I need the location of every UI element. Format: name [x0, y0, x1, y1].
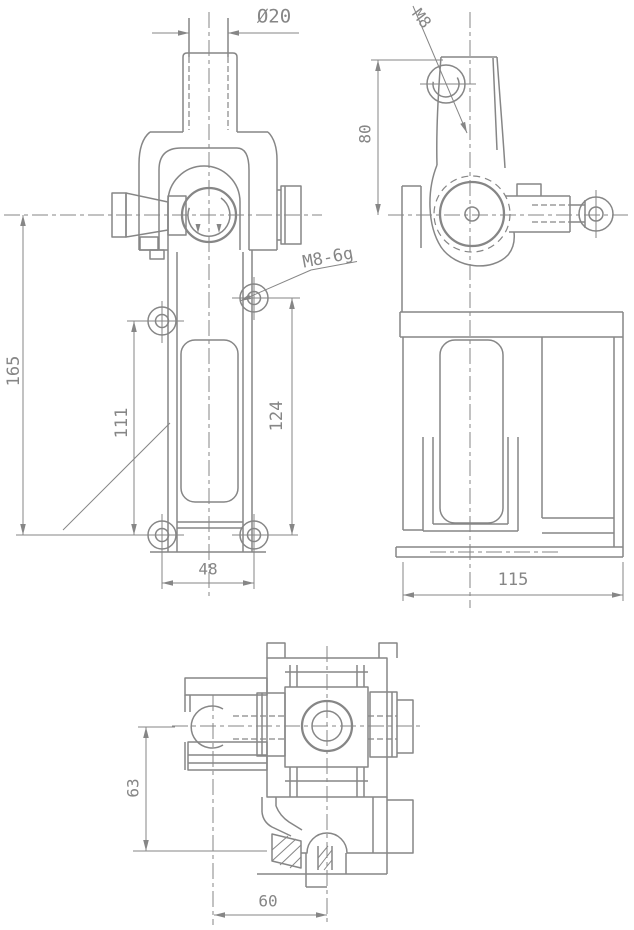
front-view-dimensions: Ø20 165 111 124 48 — [4, 6, 357, 590]
engineering-drawing-canvas: Ø20 165 111 124 48 — [0, 0, 634, 930]
dim-label-right-hole-spacing: 124 — [267, 401, 287, 432]
front-view-centerlines — [4, 12, 322, 600]
dim-label-base-width: 115 — [498, 570, 529, 590]
thread-callout-m8: M8 — [408, 5, 435, 32]
dim-label-bottom-hole-spacing: 48 — [198, 560, 217, 579]
dim-label-vertical-offset: 63 — [124, 778, 143, 797]
dim-label-left-hole-spacing: 111 — [112, 408, 132, 439]
side-view-geometry — [396, 57, 623, 557]
thread-callout-m8-6g: M8-6g — [301, 244, 355, 273]
plan-view-centerlines — [172, 646, 420, 925]
front-view: Ø20 165 111 124 48 — [4, 6, 357, 601]
plan-view-geometry — [185, 643, 413, 887]
dim-label-shaft-diameter: Ø20 — [257, 6, 291, 28]
side-view-dimensions: M8 80 115 — [356, 5, 624, 601]
front-view-geometry — [63, 18, 301, 552]
dim-label-horizontal-offset: 60 — [258, 892, 277, 911]
side-view: M8 80 115 — [356, 5, 633, 608]
technical-drawing-page: Ø20 165 111 124 48 — [0, 0, 634, 930]
plan-view: 63 60 — [124, 643, 421, 925]
dim-label-overall-height: 165 — [4, 356, 24, 387]
dim-label-arm-height: 80 — [356, 124, 375, 143]
